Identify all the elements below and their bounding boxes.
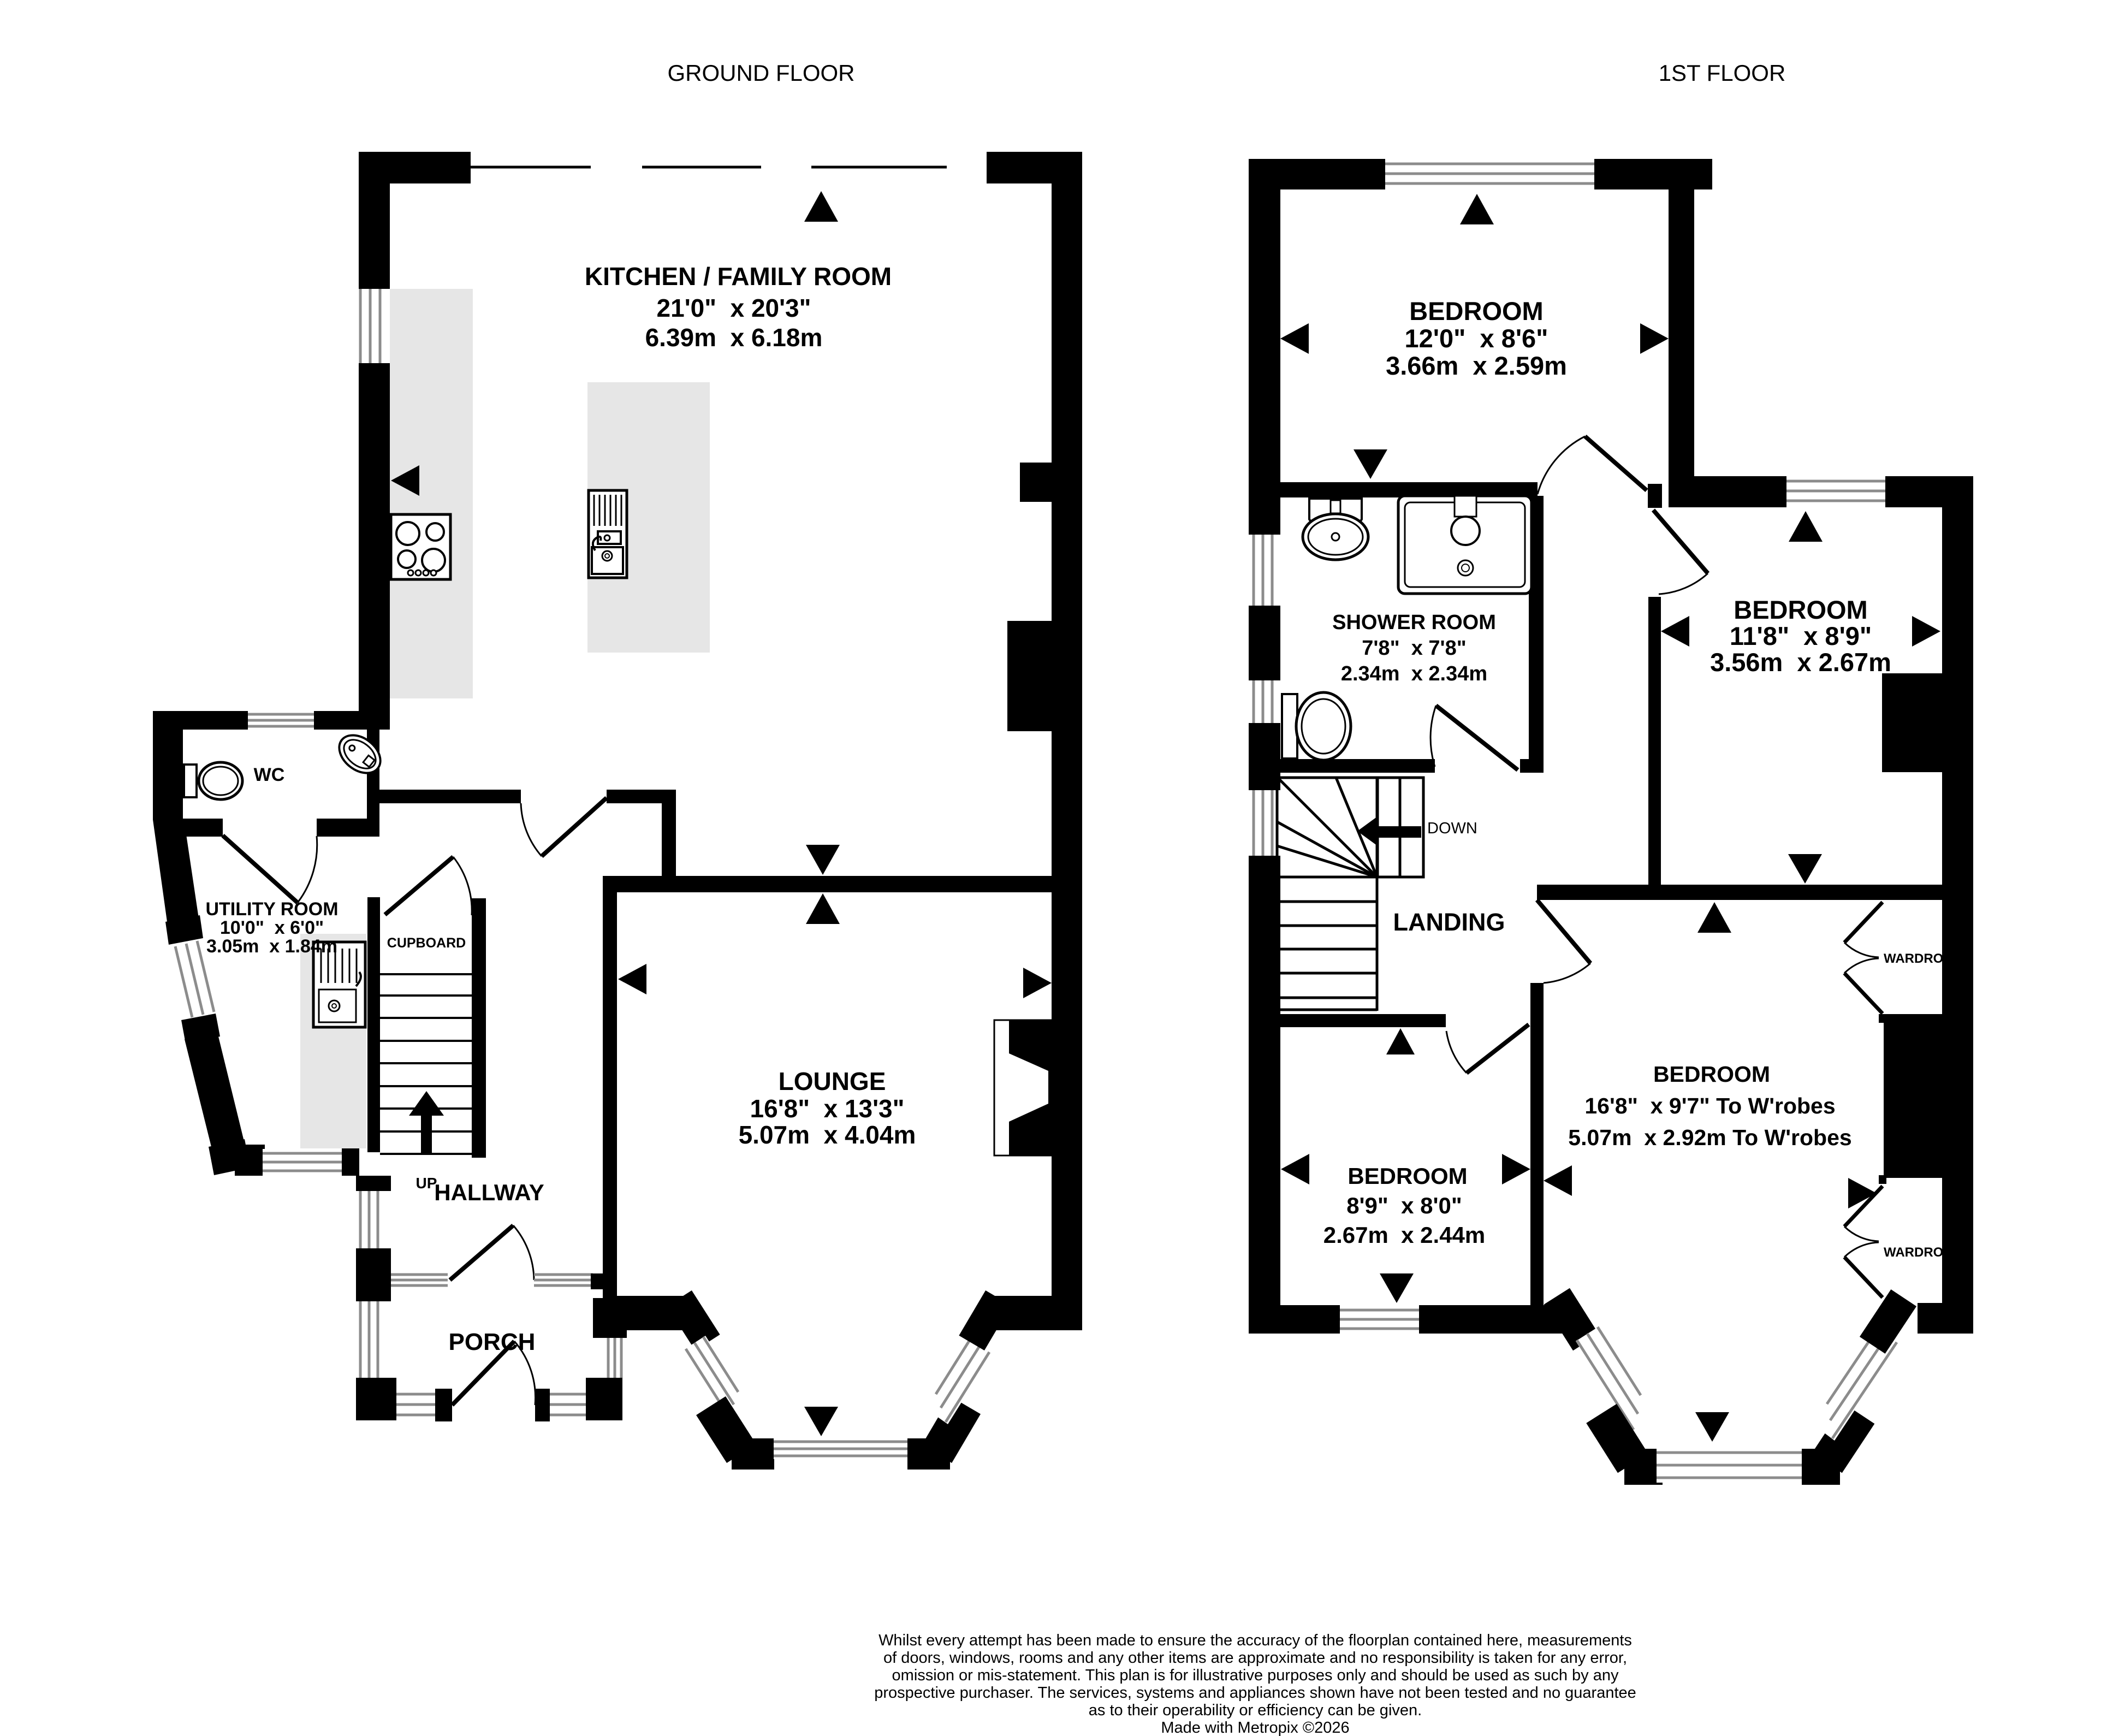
svg-text:2.34m x 2.34m: 2.34m x 2.34m bbox=[1341, 662, 1487, 685]
svg-text:8'9" x 8'0": 8'9" x 8'0" bbox=[1346, 1193, 1462, 1218]
svg-text:Whilst every attempt has been: Whilst every attempt has been made to en… bbox=[879, 1632, 1632, 1649]
svg-text:21'0" x 20'3": 21'0" x 20'3" bbox=[657, 294, 811, 322]
svg-text:of doors, windows, rooms and a: of doors, windows, rooms and any other i… bbox=[883, 1649, 1627, 1667]
svg-text:3.56m x 2.67m: 3.56m x 2.67m bbox=[1710, 648, 1891, 677]
svg-text:12'0" x 8'6": 12'0" x 8'6" bbox=[1405, 324, 1548, 353]
svg-text:3.66m x 2.59m: 3.66m x 2.59m bbox=[1386, 351, 1567, 380]
svg-text:UTILITY ROOM: UTILITY ROOM bbox=[205, 899, 338, 920]
svg-text:2.67m x 2.44m: 2.67m x 2.44m bbox=[1323, 1222, 1486, 1248]
svg-text:16'8" x 9'7" To W'robes: 16'8" x 9'7" To W'robes bbox=[1584, 1093, 1835, 1118]
svg-text:PORCH: PORCH bbox=[449, 1329, 536, 1355]
svg-text:WARDRO: WARDRO bbox=[1884, 951, 1943, 966]
svg-text:5.07m x 2.92m To W'robes: 5.07m x 2.92m To W'robes bbox=[1568, 1125, 1851, 1150]
svg-text:as to their operability or eff: as to their operability or efficiency ca… bbox=[1089, 1702, 1422, 1719]
svg-text:GROUND FLOOR: GROUND FLOOR bbox=[667, 60, 854, 86]
svg-text:LANDING: LANDING bbox=[1393, 908, 1505, 936]
svg-text:BEDROOM: BEDROOM bbox=[1348, 1163, 1467, 1189]
svg-text:CUPBOARD: CUPBOARD bbox=[387, 935, 466, 951]
svg-text:SHOWER ROOM: SHOWER ROOM bbox=[1332, 611, 1496, 634]
svg-text:Made with Metropix ©2026: Made with Metropix ©2026 bbox=[1161, 1719, 1349, 1736]
svg-text:10'0" x 6'0": 10'0" x 6'0" bbox=[220, 917, 324, 938]
svg-text:LOUNGE: LOUNGE bbox=[779, 1067, 886, 1095]
svg-text:DOWN: DOWN bbox=[1427, 820, 1477, 837]
svg-text:11'8" x 8'9": 11'8" x 8'9" bbox=[1730, 621, 1872, 650]
svg-text:HALLWAY: HALLWAY bbox=[434, 1180, 544, 1205]
svg-text:5.07m x 4.04m: 5.07m x 4.04m bbox=[739, 1121, 916, 1149]
svg-text:WC: WC bbox=[254, 765, 285, 785]
svg-text:WARDRO: WARDRO bbox=[1884, 1245, 1943, 1260]
svg-text:7'8" x 7'8": 7'8" x 7'8" bbox=[1362, 637, 1466, 660]
svg-text:16'8" x 13'3": 16'8" x 13'3" bbox=[750, 1094, 905, 1123]
svg-text:prospective purchaser. The ser: prospective purchaser. The services, sys… bbox=[874, 1684, 1636, 1702]
svg-text:BEDROOM: BEDROOM bbox=[1734, 595, 1867, 624]
svg-text:1ST FLOOR: 1ST FLOOR bbox=[1659, 60, 1786, 86]
svg-text:KITCHEN / FAMILY ROOM: KITCHEN / FAMILY ROOM bbox=[585, 262, 892, 291]
svg-text:omission or mis-statement. Thi: omission or mis-statement. This plan is … bbox=[892, 1667, 1619, 1684]
svg-text:BEDROOM: BEDROOM bbox=[1653, 1062, 1770, 1087]
svg-text:BEDROOM: BEDROOM bbox=[1409, 297, 1543, 325]
svg-text:6.39m x 6.18m: 6.39m x 6.18m bbox=[645, 323, 823, 352]
svg-text:3.05m x 1.84m: 3.05m x 1.84m bbox=[206, 936, 337, 957]
